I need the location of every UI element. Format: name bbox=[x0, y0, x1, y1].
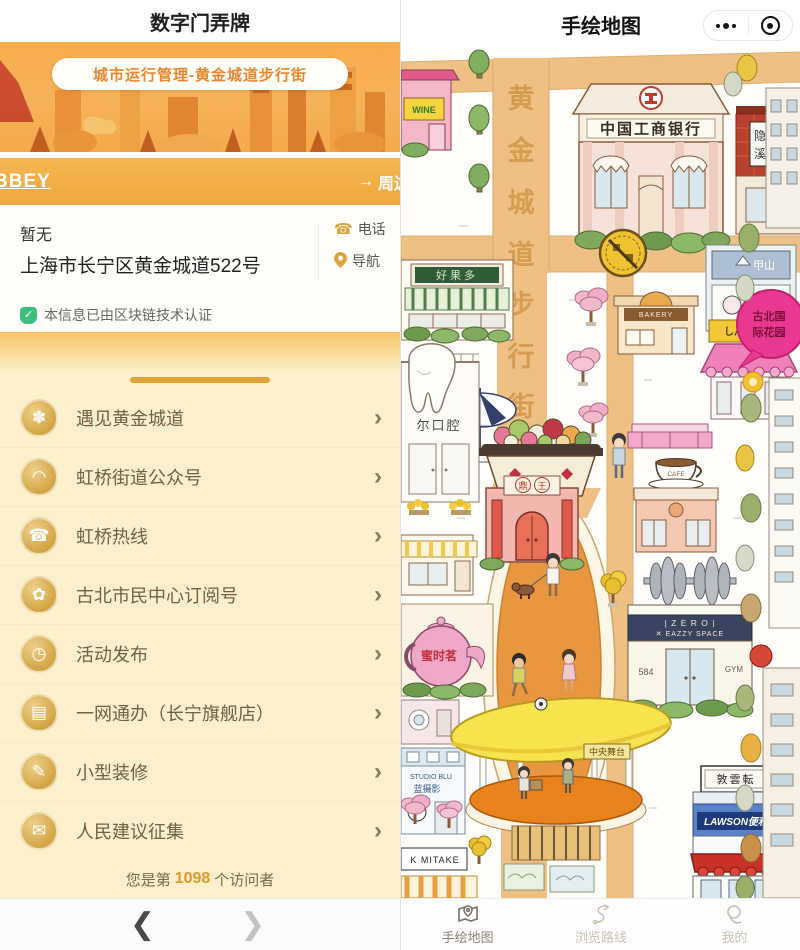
teapot-tea-shop: 蜜时茗 bbox=[401, 604, 493, 699]
svg-text:城: 城 bbox=[508, 188, 535, 218]
menu-label: 虹桥热线 bbox=[76, 523, 374, 549]
svg-text:STUDIO BLU: STUDIO BLU bbox=[410, 774, 452, 781]
menu-label: 虹桥街道公众号 bbox=[76, 464, 374, 490]
back-button[interactable]: ❮ bbox=[130, 907, 155, 942]
chevron-right-icon: › bbox=[374, 819, 382, 843]
chevron-right-icon: › bbox=[374, 465, 382, 489]
comment-icon: ✉ bbox=[20, 812, 58, 850]
digital-doorplate-app: 数字门弄牌 城市运行管理-黄金城道步行街 BBEY bbox=[0, 0, 400, 950]
menu-label: 活动发布 bbox=[76, 641, 374, 667]
menu-label: 人民建议征集 bbox=[76, 818, 374, 844]
street-code-text: BBEY bbox=[0, 171, 51, 193]
chevron-right-icon: › bbox=[374, 524, 382, 548]
svg-text:LAWSON便利: LAWSON便利 bbox=[704, 816, 770, 828]
map-pin-icon bbox=[457, 903, 479, 925]
fruit-shop: 好果多 bbox=[401, 260, 513, 343]
miniprogram-capsule bbox=[703, 10, 793, 41]
studio-blu-building: STUDIO BLU 蓝摄影 bbox=[401, 748, 465, 834]
menu-item-one-stop-service[interactable]: ▤ 一网通办（长宁旗舰店） › bbox=[0, 684, 400, 743]
chevron-right-icon: › bbox=[374, 701, 382, 725]
menu-label: 小型装修 bbox=[76, 759, 374, 785]
location-pin-icon bbox=[334, 252, 347, 271]
svg-text:蜜时茗: 蜜时茗 bbox=[421, 648, 457, 663]
cert-text: 本信息已由区块链技术认证 bbox=[44, 305, 212, 325]
menu-item-public-suggestions[interactable]: ✉ 人民建议征集 › bbox=[0, 802, 400, 860]
banner-pill: 城市运行管理-黄金城道步行街 bbox=[52, 58, 348, 90]
menu-item-gubei-center[interactable]: ✿ 古北市民中心订阅号 › bbox=[0, 566, 400, 625]
svg-text:584: 584 bbox=[638, 667, 653, 677]
chevron-right-icon: › bbox=[374, 642, 382, 666]
list-handle-bar bbox=[130, 377, 270, 383]
svg-text:中央舞台: 中央舞台 bbox=[589, 746, 625, 757]
place-name: 暂无 bbox=[20, 221, 52, 245]
svg-text:| Z E R O |: | Z E R O | bbox=[665, 618, 716, 628]
svg-text:溪: 溪 bbox=[754, 147, 766, 161]
svg-text:✕ EAZZY SPACE: ✕ EAZZY SPACE bbox=[656, 631, 724, 638]
hotline-icon: ☎ bbox=[20, 517, 58, 555]
wine-shop: WINE bbox=[401, 70, 459, 157]
street-title-bar[interactable]: BBEY → 周边 bbox=[0, 158, 400, 205]
cherry-blossom-trees bbox=[567, 288, 608, 437]
central-stage-pavilion: 中央舞台 bbox=[449, 691, 673, 892]
tab-label: 我的 bbox=[721, 927, 747, 946]
svg-text:K MITAKE: K MITAKE bbox=[410, 855, 459, 865]
bakery-building: BAKERY bbox=[614, 292, 698, 354]
close-target-button[interactable] bbox=[749, 11, 793, 40]
mitake-shop: K MITAKE bbox=[401, 848, 477, 898]
more-button[interactable] bbox=[704, 11, 748, 40]
svg-text:敦雲転: 敦雲転 bbox=[717, 772, 756, 786]
banner-illustration[interactable]: 城市运行管理-黄金城道步行街 bbox=[0, 42, 400, 152]
right-header: 手绘地图 bbox=[401, 0, 800, 48]
divider bbox=[318, 223, 319, 279]
chevron-right-icon: › bbox=[374, 406, 382, 430]
left-header: 数字门弄牌 bbox=[0, 0, 400, 42]
document-icon: ▤ bbox=[20, 694, 58, 732]
svg-text:际花园: 际花园 bbox=[753, 325, 786, 339]
menu-item-events[interactable]: ◷ 活动发布 › bbox=[0, 625, 400, 684]
rainbow-icon: ◠ bbox=[20, 458, 58, 496]
hand-drawn-map-canvas[interactable]: 黄 金 城 道 步 行 街 WINE bbox=[401, 48, 800, 898]
pink-awning-stand bbox=[628, 424, 712, 448]
visitor-counter: 您是第 1098 个访问者 bbox=[0, 860, 400, 898]
icbc-bank-building: 中国工商银行 bbox=[573, 84, 730, 253]
maple-leaf-icon: ✽ bbox=[20, 399, 58, 437]
menu-label: 古北市民中心订阅号 bbox=[76, 582, 374, 608]
street-medallion bbox=[600, 230, 646, 276]
yellow-awning-shop bbox=[401, 535, 477, 595]
target-circle-icon bbox=[761, 16, 780, 35]
svg-text:蓝摄影: 蓝摄影 bbox=[413, 783, 440, 794]
gym-building: | Z E R O | ✕ EAZZY SPACE 584 GYM bbox=[627, 557, 753, 718]
svg-text:BAKERY: BAKERY bbox=[639, 312, 673, 319]
address-card: 暂无 上海市长宁区黄金城道522号 ☎ 电话 导航 ✓ 本信息已由区块链技术认证 bbox=[0, 205, 400, 332]
menu-label: 遇见黄金城道 bbox=[76, 405, 374, 431]
navigate-label: 导航 bbox=[352, 251, 380, 271]
visitor-suffix: 个访问者 bbox=[214, 869, 274, 890]
nearby-link[interactable]: 周边 bbox=[378, 170, 400, 194]
route-icon bbox=[590, 903, 612, 925]
phone-icon: ☎ bbox=[334, 222, 353, 237]
navigate-button[interactable]: 导航 bbox=[334, 251, 380, 271]
gradient-strip bbox=[0, 332, 400, 372]
tab-label: 浏览路线 bbox=[575, 927, 627, 946]
visitor-prefix: 您是第 bbox=[126, 869, 171, 890]
menu-label: 一网通办（长宁旗舰店） bbox=[76, 700, 374, 726]
right-page-title: 手绘地图 bbox=[561, 10, 641, 39]
street-trees bbox=[469, 50, 489, 192]
clock-icon: ◷ bbox=[20, 635, 58, 673]
more-dots-icon bbox=[716, 23, 736, 29]
blockchain-cert: ✓ 本信息已由区块链技术认证 bbox=[20, 305, 212, 325]
svg-text:王: 王 bbox=[537, 481, 546, 491]
menu-item-small-renovation[interactable]: ✎ 小型装修 › bbox=[0, 743, 400, 802]
person-icon bbox=[723, 903, 745, 925]
svg-text:GYM: GYM bbox=[725, 665, 744, 674]
arrow-right-icon: → bbox=[358, 173, 374, 191]
tab-mine[interactable]: 我的 bbox=[668, 899, 800, 950]
place-address: 上海市长宁区黄金城道522号 bbox=[20, 251, 261, 278]
menu-item-meet-golden-street[interactable]: ✽ 遇见黄金城道 › bbox=[0, 389, 400, 448]
flower-icon: ✿ bbox=[20, 576, 58, 614]
shield-check-icon: ✓ bbox=[20, 307, 37, 324]
menu-item-hongqiao-hotline[interactable]: ☎ 虹桥热线 › bbox=[0, 507, 400, 566]
map-svg: 黄 金 城 道 步 行 街 WINE bbox=[401, 48, 800, 898]
svg-text:中国工商银行: 中国工商银行 bbox=[600, 120, 702, 138]
brush-icon: ✎ bbox=[20, 753, 58, 791]
visitor-count: 1098 bbox=[175, 870, 211, 888]
bank-window-right bbox=[671, 156, 707, 208]
chevron-right-icon: › bbox=[374, 760, 382, 784]
svg-text:好果多: 好果多 bbox=[436, 268, 478, 282]
svg-text:隐: 隐 bbox=[754, 129, 766, 143]
tab-hand-drawn-map[interactable]: 手绘地图 bbox=[401, 899, 534, 950]
svg-text:鼎: 鼎 bbox=[518, 481, 527, 491]
menu-list: ✽ 遇见黄金城道 › ◠ 虹桥街道公众号 › ☎ 虹桥热线 › ✿ 古北市民中心… bbox=[0, 372, 400, 898]
hotpot-storefront: 鼎 王 bbox=[480, 476, 584, 570]
dumbbell-icon bbox=[644, 557, 736, 605]
map-tab-bar: 手绘地图 浏览路线 我的 bbox=[401, 898, 800, 950]
cafe-building: CAFE bbox=[634, 459, 718, 553]
dental-clinic-building: 尔口腔 bbox=[401, 344, 479, 515]
hand-drawn-map-app: 手绘地图 bbox=[400, 0, 800, 950]
chevron-right-icon: › bbox=[374, 583, 382, 607]
icbc-logo bbox=[640, 87, 662, 109]
bank-window-left bbox=[593, 156, 629, 208]
svg-text:古北国: 古北国 bbox=[753, 309, 786, 323]
svg-text:WINE: WINE bbox=[412, 105, 436, 115]
phone-label: 电话 bbox=[358, 219, 386, 239]
svg-text:甲山: 甲山 bbox=[753, 259, 775, 272]
svg-text:CAFE: CAFE bbox=[667, 471, 685, 478]
browser-nav-bar: ❮ ❯ bbox=[0, 898, 400, 950]
svg-text:行: 行 bbox=[507, 341, 535, 372]
svg-text:金: 金 bbox=[507, 135, 536, 166]
tab-browse-routes[interactable]: 浏览路线 bbox=[534, 899, 667, 950]
svg-text:尔口腔: 尔口腔 bbox=[416, 418, 461, 433]
left-page-title: 数字门弄牌 bbox=[150, 7, 250, 36]
banner-pill-text: 城市运行管理-黄金城道步行街 bbox=[93, 64, 307, 85]
phone-button[interactable]: ☎ 电话 bbox=[334, 219, 386, 239]
menu-item-hongqiao-account[interactable]: ◠ 虹桥街道公众号 › bbox=[0, 448, 400, 507]
forward-button[interactable]: ❯ bbox=[240, 907, 265, 942]
svg-text:黄: 黄 bbox=[508, 84, 535, 114]
tab-label: 手绘地图 bbox=[442, 927, 494, 946]
